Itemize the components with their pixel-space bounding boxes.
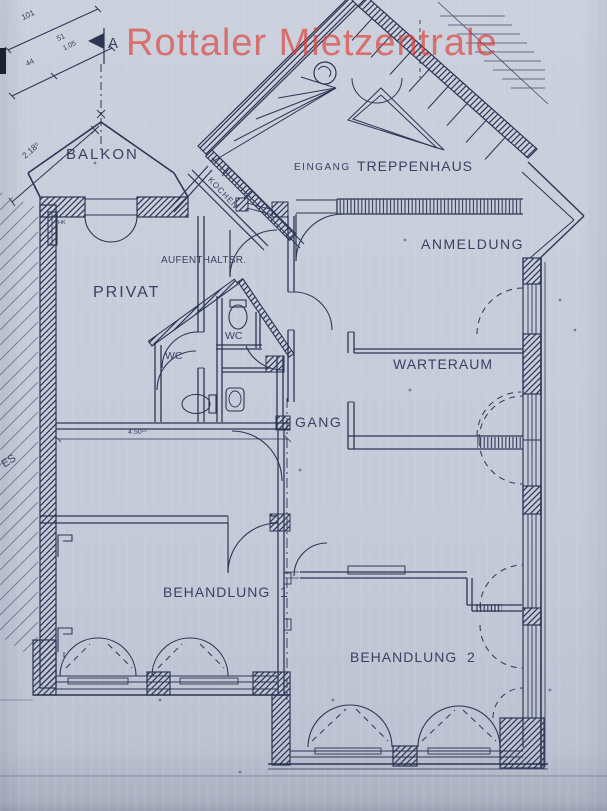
- floor-plan-drawing: [0, 0, 607, 811]
- dim-label-4-50: 4.50¹⁵: [128, 428, 147, 436]
- room-label-behandlung-1: BEHANDLUNG 1: [163, 585, 289, 599]
- photo-edge-artifact: [0, 48, 6, 74]
- hall-wall: [296, 199, 523, 214]
- neighbor-hatch: [0, 48, 38, 662]
- room-label-warteraum: WARTERAUM: [393, 357, 493, 371]
- room-label-privat: PRIVAT: [93, 285, 160, 301]
- radiator-label-hk: HK: [58, 221, 66, 227]
- radiator-icon: [58, 628, 72, 652]
- room-label-balkon: BALKON: [66, 147, 139, 162]
- section-marker-label: A: [108, 36, 118, 51]
- toilet-lower-icon: [182, 395, 210, 414]
- bottom-walls: [33, 672, 548, 769]
- scanned-floor-plan: Rottaler Mietzentrale A BALKON EINGANG T…: [0, 0, 607, 811]
- room-label-wc-upper: WC: [225, 331, 243, 342]
- room-label-eingang: EINGANG: [294, 163, 351, 173]
- room-label-behandlung-2: BEHANDLUNG 2: [350, 650, 476, 664]
- room-label-treppenhaus: TREPPENHAUS: [357, 159, 473, 173]
- section-flag-icon: [88, 33, 104, 49]
- room-label-anmeldung: ANMELDUNG: [421, 237, 524, 251]
- kitchen-corridor: [170, 150, 304, 250]
- outer-walls: [33, 0, 584, 768]
- room-label-wc-lower: WC: [165, 351, 183, 362]
- radiator-icon: [58, 535, 72, 557]
- toilet-upper-icon: [229, 305, 247, 329]
- room-label-gang: GANG: [295, 415, 342, 429]
- room-label-aufenthaltsraum: AUFENTHALTSR.: [161, 256, 246, 266]
